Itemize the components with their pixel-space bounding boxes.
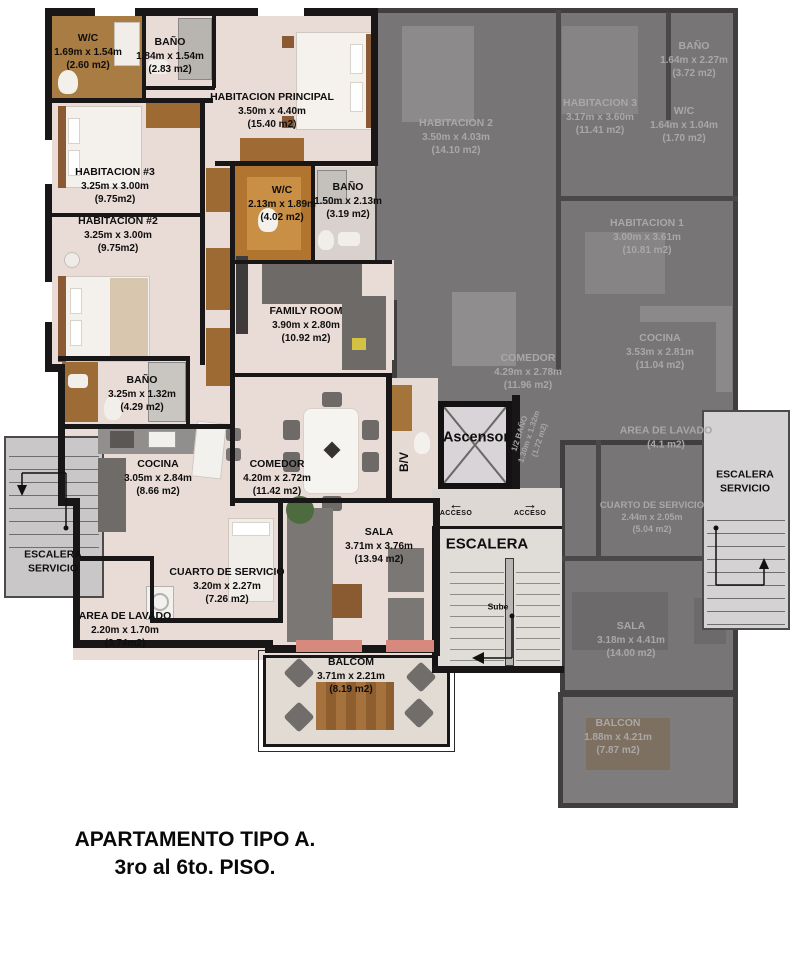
label-sala: SALA3.71m x 3.76m(13.94 m2) <box>345 526 413 566</box>
window <box>45 140 52 184</box>
furniture-chair <box>362 420 379 440</box>
acceso-left: ← ACCESO <box>434 500 478 517</box>
furniture-sink <box>68 374 88 388</box>
furniture-sofa <box>342 296 386 370</box>
furniture-closet <box>206 248 230 310</box>
furniture-pillow <box>70 320 82 346</box>
outer-wall <box>386 375 392 503</box>
furniture-closet <box>206 328 230 386</box>
furniture-chair <box>322 392 342 407</box>
label-b-cocina: COCINA3.53m x 2.81m(11.04 m2) <box>626 332 694 372</box>
service-stair-right-label: ESCALERA SERVICIO <box>716 468 774 495</box>
furniture-armchair <box>388 598 424 642</box>
apartment-b-wall <box>556 10 561 372</box>
label-b-cuarto-servicio: CUARTO DE SERVICIO2.44m x 2.05m(5.04 m2) <box>600 500 704 536</box>
sube-label: Sube <box>488 601 509 612</box>
plan-title-line2: 3ro al 6to. PISO. <box>70 854 320 882</box>
label-cocina: COCINA3.05m x 2.84m(8.66 m2) <box>124 458 192 498</box>
furniture-bed-gray <box>402 26 474 122</box>
furniture-kitchen-island <box>191 421 227 480</box>
arrow-left-icon: ← <box>449 500 464 510</box>
furniture-closet <box>206 168 230 212</box>
furniture-blanket <box>110 278 148 360</box>
furniture-pillow <box>350 82 363 112</box>
furniture-headboard <box>58 276 66 362</box>
partition-wall <box>230 163 235 506</box>
label-bano-small: BAÑO3.25m x 1.32m(4.29 m2) <box>108 374 176 414</box>
furniture-vanity <box>392 385 412 431</box>
label-area-lavado: AREA DE LAVADO2.20m x 1.70m(3.74m2) <box>79 610 172 650</box>
label-balcom: BALCOM3.71m x 2.21m(8.19 m2) <box>317 656 385 696</box>
furniture-pillow-yellow <box>352 338 366 350</box>
furniture-toilet <box>58 70 78 94</box>
label-b-habitacion-1: HABITACION 13.00m x 3.61m(10.81 m2) <box>610 217 684 257</box>
furniture-chair <box>283 420 300 440</box>
label-b-bano: BAÑO1.64m x 2.27m(3.72 m2) <box>660 40 728 80</box>
floorplan-page: { "title": {"line1": "APARTAMENTO TIPO A… <box>0 0 796 960</box>
label-cuarto-servicio: CUARTO DE SERVICIO3.20m x 2.27m(7.26 m2) <box>169 566 284 606</box>
label-comedor: COMEDOR4.20m x 2.72m(11.42 m2) <box>243 458 311 498</box>
partition-wall <box>58 356 190 361</box>
plan-title: APARTAMENTO TIPO A. 3ro al 6to. PISO. <box>70 826 320 883</box>
label-habitacion-2: HABITACION #23.25m x 3.00m(9.75m2) <box>78 215 158 255</box>
apartment-b-wall <box>560 196 738 201</box>
label-b-habitacion-3: HABITACION 33.17m x 3.60m(11.41 m2) <box>563 97 637 137</box>
furniture-sofa <box>287 508 333 642</box>
window <box>258 8 304 16</box>
plan-title-line1: APARTAMENTO TIPO A. <box>70 826 320 854</box>
label-b-wc: W/C1.64m x 1.04m(1.70 m2) <box>650 105 718 145</box>
label-b-sala: SALA3.18m x 4.41m(14.00 m2) <box>597 620 665 660</box>
label-habitacion-principal: HABITACION PRINCIPAL3.50m x 4.40m(15.40 … <box>210 91 334 131</box>
furniture-toilet <box>318 230 334 250</box>
partition-wall <box>200 98 205 365</box>
furniture-sink <box>148 431 176 448</box>
furniture-counter-gray <box>716 306 732 392</box>
partition-wall <box>215 161 375 166</box>
label-family-room: FAMILY ROOM3.90m x 2.80m(10.92 m2) <box>270 305 343 345</box>
apartment-b-wall <box>596 440 601 558</box>
window <box>95 8 135 16</box>
label-habitacion-3: HABITACION #33.25m x 3.00m(9.75m2) <box>75 166 155 206</box>
flower-box <box>296 640 362 652</box>
furniture-closet <box>240 138 304 162</box>
furniture-coffee-table <box>332 584 362 618</box>
floor-plan: Ascensor ← ACCESO → ACCESO ESCALERA Sube… <box>0 0 796 960</box>
partition-wall <box>145 86 215 90</box>
label-wc-top: W/C1.69m x 1.54m(2.60 m2) <box>54 32 122 72</box>
furniture-tv-console <box>236 256 248 334</box>
furniture-pillow <box>70 288 82 314</box>
arrow-right-icon: → <box>523 500 538 510</box>
label-b-comedor: COMEDOR4.29m x 2.78m(11.96 m2) <box>494 352 562 392</box>
service-stair-right-arrow <box>702 410 790 630</box>
label-b-area-lavado: AREA DE LAVADO(4.1 m2) <box>620 425 713 452</box>
partition-wall <box>235 498 435 503</box>
bv-label: B/V <box>397 452 413 472</box>
partition-wall <box>58 424 235 429</box>
furniture-sink <box>338 232 360 246</box>
label-bano-top: BAÑO1.84m x 1.54m(2.83 m2) <box>136 36 204 76</box>
main-stair-label: ESCALERA <box>446 534 529 554</box>
furniture-chair <box>362 452 379 472</box>
furniture-pillow <box>68 118 80 144</box>
furniture-headboard <box>58 106 66 188</box>
label-wc-mid: W/C2.13m x 1.89m(4.02 m2) <box>248 184 316 224</box>
furniture-nightstand <box>282 36 294 48</box>
outer-wall <box>371 8 378 166</box>
partition-wall <box>186 356 190 428</box>
furniture-closet <box>146 100 200 128</box>
partition-wall <box>212 14 216 88</box>
service-stair-left-label: ESCALERA SERVICIO <box>24 548 82 575</box>
partition-wall <box>51 98 213 103</box>
label-bano-mid: BAÑO1.50m x 2.13m(3.19 m2) <box>314 181 382 221</box>
furniture-pillow <box>350 44 363 74</box>
furniture-vanity <box>62 362 98 422</box>
elevator-label: Ascensor <box>443 429 509 448</box>
label-b-habitacion-2: HABITACION 23.50m x 4.03m(14.10 m2) <box>419 117 493 157</box>
window <box>45 282 52 322</box>
partition-wall <box>232 260 392 264</box>
acceso-right: → ACCESO <box>508 500 552 517</box>
label-b-balcon: BALCON1.88m x 4.21m(7.87 m2) <box>584 717 652 757</box>
furniture-stove <box>110 431 134 448</box>
furniture-toilet <box>414 432 430 454</box>
furniture-pillow <box>232 522 270 536</box>
partition-wall <box>232 373 392 377</box>
flower-box <box>386 640 434 652</box>
